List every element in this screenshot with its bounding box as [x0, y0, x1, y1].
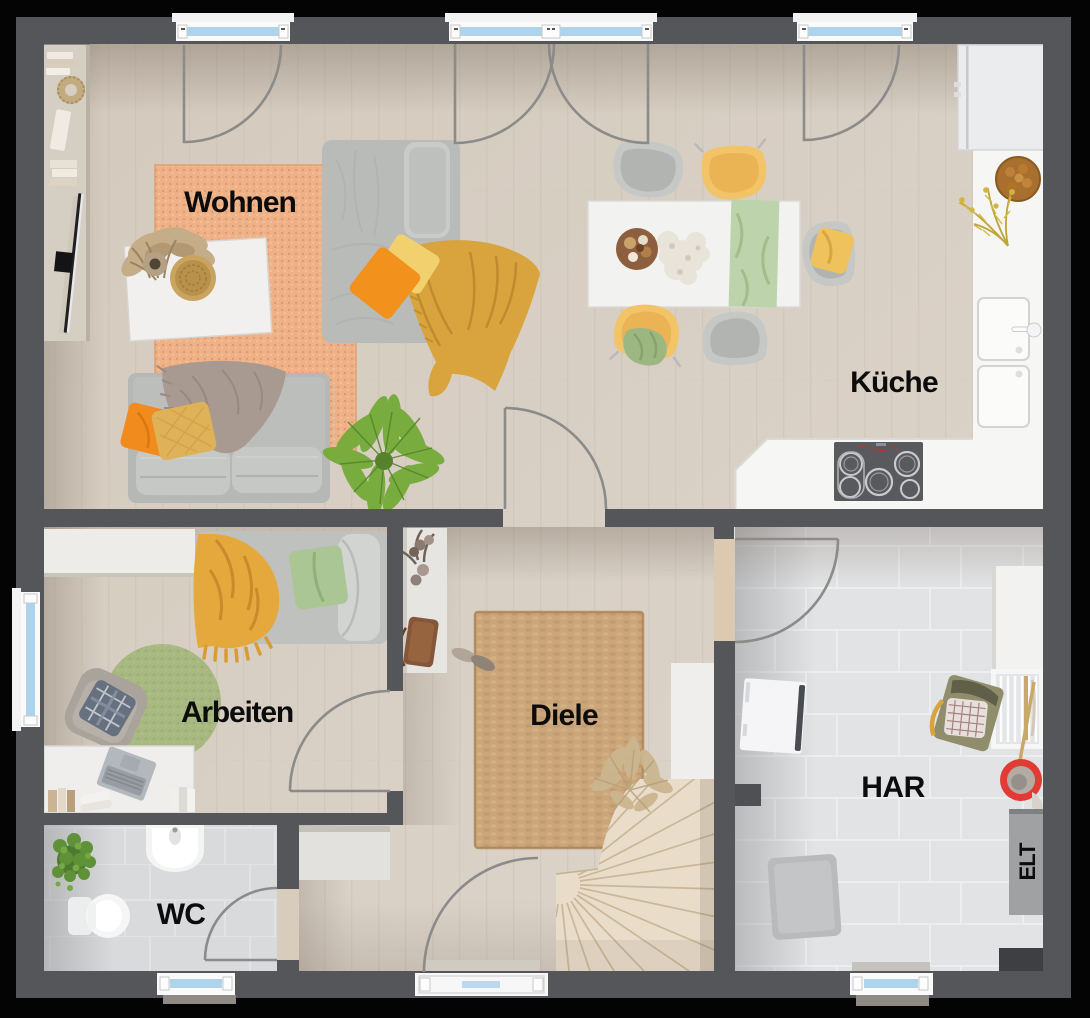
svg-text:Wohnen: Wohnen [184, 186, 296, 219]
svg-text:WC: WC [157, 898, 206, 931]
svg-text:ELT: ELT [1015, 842, 1040, 880]
svg-text:Arbeiten: Arbeiten [181, 696, 293, 729]
svg-text:Küche: Küche [850, 366, 938, 399]
svg-text:HAR: HAR [861, 771, 925, 804]
svg-text:Diele: Diele [530, 699, 598, 732]
